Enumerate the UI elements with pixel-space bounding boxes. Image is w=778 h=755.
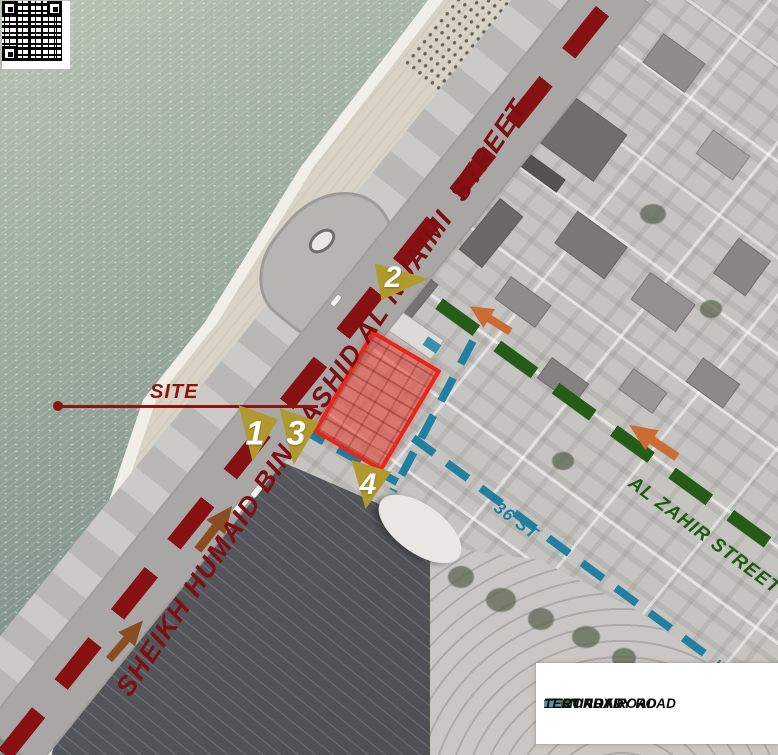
tree xyxy=(528,608,554,630)
tree xyxy=(552,452,574,470)
marker-2-number: 2 xyxy=(385,261,402,295)
building-block xyxy=(495,276,552,328)
marker-4: 4 xyxy=(348,459,392,509)
marker-1: 1 xyxy=(235,404,279,462)
marker-2-triangle xyxy=(375,262,429,300)
tree xyxy=(700,300,722,318)
tree xyxy=(486,588,516,612)
building-block xyxy=(630,272,695,332)
building-block xyxy=(696,129,751,180)
tree xyxy=(640,204,666,224)
site-analysis-map: SHEIKH HUMAID BIN RASHID AL NUAIMI STREE… xyxy=(0,0,778,755)
qr-pattern xyxy=(2,1,62,61)
qr-finder-icon xyxy=(2,1,17,16)
legend-label: TERTIARY ROAD xyxy=(544,696,657,711)
tree xyxy=(448,566,474,588)
building-block xyxy=(713,237,771,296)
building-block xyxy=(618,368,667,414)
building-block xyxy=(686,357,741,408)
qr-finder-icon xyxy=(47,1,62,16)
qr-finder-icon xyxy=(2,46,17,61)
building-block xyxy=(554,211,628,280)
building-block xyxy=(642,33,705,93)
marker-2: 2 xyxy=(375,262,429,300)
marker-3-number: 3 xyxy=(287,415,306,454)
site-callout-label: SITE xyxy=(150,381,198,404)
qr-code xyxy=(2,1,70,69)
tree xyxy=(572,626,600,648)
marker-1-number: 1 xyxy=(246,415,265,454)
marker-3: 3 xyxy=(276,407,320,465)
marker-4-number: 4 xyxy=(360,468,377,502)
legend: MAIN ROAD SECONDARY ROAD TERTIARY ROAD xyxy=(536,663,778,744)
